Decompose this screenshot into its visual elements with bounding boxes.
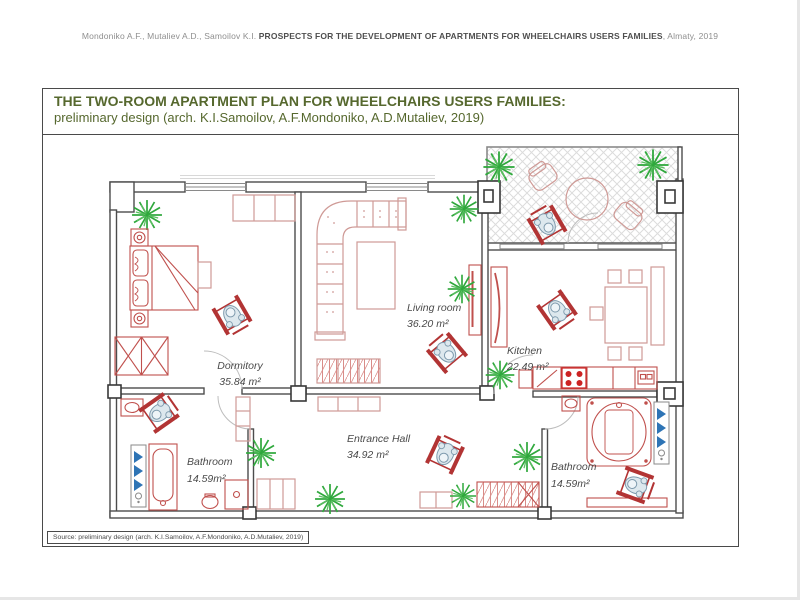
wheelchair-user-icon: [616, 466, 656, 505]
panel-title: THE TWO-ROOM APARTMENT PLAN FOR WHEELCHA…: [54, 93, 727, 109]
room-entrance-hall: Entrance Hall 34.92 m²: [246, 397, 542, 514]
plant-icon: [512, 442, 542, 472]
hall-shelves: [257, 479, 295, 509]
window-living-room: [366, 184, 428, 191]
plant-icon: [132, 200, 162, 230]
facade-lines: [180, 176, 435, 179]
header-authors: Mondoniko A.F., Mutaliev A.D., Samoilov …: [82, 31, 259, 41]
plant-icon: [450, 483, 476, 509]
tv-cabinet: [469, 265, 481, 335]
hall-cabinet: [420, 492, 452, 508]
room-bathroom-right: Bathroom 14.59m²: [551, 396, 669, 507]
main-panel: THE TWO-ROOM APARTMENT PLAN FOR WHEELCHA…: [42, 88, 739, 547]
room-dormitory: Dormitory 35.84 m²: [115, 195, 295, 388]
dresser: [115, 337, 168, 375]
room-label-hall: Entrance Hall: [347, 433, 411, 445]
room-bathroom-left: Bathroom 14.59m²: [121, 391, 250, 510]
speaker-icon: [131, 310, 148, 327]
room-label-dormitory: Dormitory: [217, 360, 263, 372]
room-kitchen: Kitchen 22.49 m²: [486, 267, 664, 389]
room-area-hall: 34.92 m²: [347, 449, 389, 461]
window-dormitory: [185, 184, 246, 191]
header-title: PROSPECTS FOR THE DEVELOPMENT OF APARTME…: [259, 31, 663, 41]
kitchen-tall-cabinet: [491, 267, 507, 347]
corner-basin: [121, 399, 143, 416]
room-area-bathroom-right: 14.59m²: [551, 478, 590, 490]
towel-radiator-icon: [131, 445, 146, 507]
sink-icon: [638, 371, 654, 384]
shower-tray: [225, 480, 248, 509]
nightstand: [198, 262, 211, 288]
bath-bench: [587, 498, 667, 507]
room-label-bathroom-right: Bathroom: [551, 461, 597, 473]
wheelchair-user-icon: [138, 391, 181, 434]
room-label-bathroom-left: Bathroom: [187, 456, 233, 468]
tv-stand: [317, 359, 380, 383]
source-caption: Source: preliminary design (arch. K.I.Sa…: [47, 531, 309, 544]
washbasin-icon: [202, 494, 218, 509]
plant-icon: [450, 195, 479, 224]
sideboard: [651, 267, 664, 345]
room-area-bathroom-left: 14.59m²: [187, 473, 226, 485]
wheelchair-user-icon: [212, 295, 254, 338]
room-area-dormitory: 35.84 m²: [219, 376, 261, 388]
room-area-kitchen: 22.49 m²: [506, 361, 549, 373]
floor-plan: Dormitory 35.84 m²: [95, 139, 695, 531]
document-page: Mondoniko A.F., Mutaliev A.D., Samoilov …: [0, 0, 800, 600]
header-tail: , Almaty, 2019: [663, 31, 718, 41]
speaker-icon: [131, 229, 148, 246]
room-label-living: Living room: [407, 302, 462, 314]
panel-subtitle: preliminary design (arch. K.I.Samoilov, …: [54, 110, 727, 125]
title-block: THE TWO-ROOM APARTMENT PLAN FOR WHEELCHA…: [43, 89, 738, 135]
towel-radiator-icon: [654, 402, 669, 464]
room-living: Living room 36.20 m²: [315, 195, 481, 383]
room-area-living: 36.20 m²: [407, 318, 449, 330]
wheelchair-user-icon: [425, 433, 466, 475]
document-header: Mondoniko A.F., Mutaliev A.D., Samoilov …: [0, 31, 800, 41]
jacuzzi-tub: [587, 398, 651, 466]
room-label-kitchen: Kitchen: [507, 345, 542, 357]
wardrobe: [233, 195, 295, 221]
washbasin-icon: [562, 396, 580, 411]
wheelchair-user-icon: [536, 289, 579, 332]
wheelchair-user-icon: [425, 330, 469, 374]
bathtub: [149, 444, 177, 510]
plant-icon: [315, 484, 345, 514]
stove-icon: [562, 368, 586, 388]
dining-table: [590, 270, 647, 360]
hall-sideboard: [318, 397, 380, 411]
hall-wardrobe: [477, 482, 539, 507]
corner-sofa: [315, 198, 406, 340]
coffee-table: [357, 242, 395, 309]
bed: [130, 246, 198, 310]
